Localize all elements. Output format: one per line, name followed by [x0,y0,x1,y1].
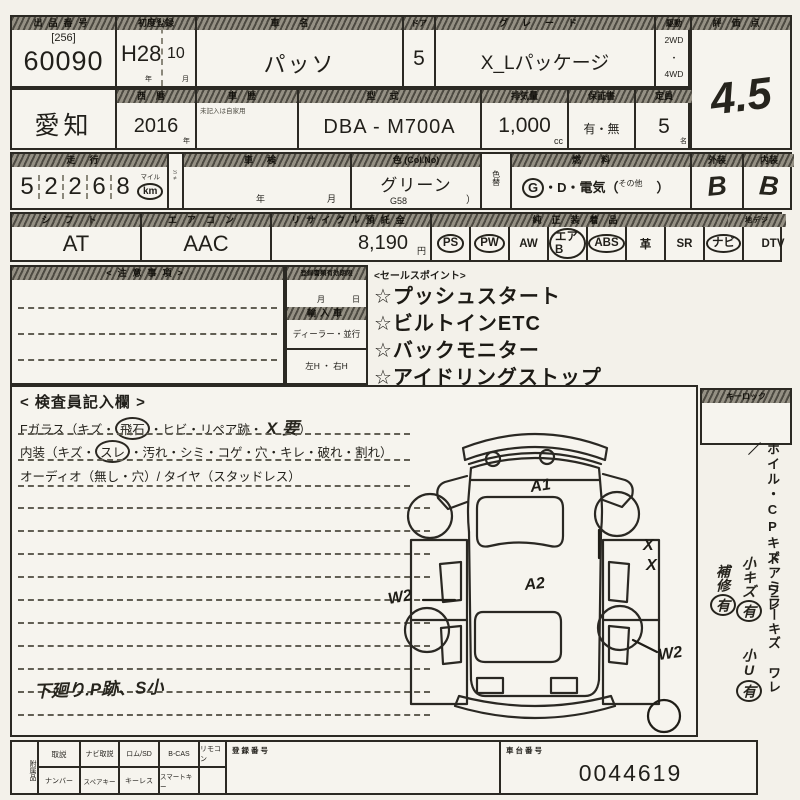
history-label: 車歴 [197,90,297,103]
first-reg-era: H28 [121,41,161,67]
accessories-row-top: 取説 ナビ取説 ロム/SD B-CAS リモコン [39,742,225,768]
shift-value: AT [12,231,140,257]
month-label: 月 [317,294,325,305]
hand-small-dent: 小U [741,648,757,678]
chassis-number-label: 車台番号 [506,745,544,756]
displacement-value: 1,000 [482,114,567,138]
grade-cell: グレード X_Lパッケージ [434,17,654,86]
year-unit: 年 [183,136,190,146]
side-note-handwritten: 小キズ有 小U有 補修有 [710,556,762,741]
region-value: 愛知 [12,106,115,142]
fuel-close-paren: ） [657,180,670,195]
shift-label: シフト [12,214,140,227]
rear-bumper [455,696,615,718]
capacity-cell: 定員 5 名 [634,90,692,148]
dashed-line [18,599,430,601]
acc-remote: リモコン [198,742,225,766]
rear-section [455,678,615,718]
hand-small-scratch: 小キズ [741,556,757,598]
dashed-line [18,714,430,716]
score-label: 評価点 [692,17,790,30]
dashed-line [18,333,277,335]
equipment-airbag: エアB [547,227,586,260]
mark-door-x2: X [645,557,658,574]
circled-yes: 有 [736,680,762,702]
year-cell: 西暦 2016 年 [115,90,195,148]
mileage-digit: 8 [110,175,134,199]
fuel-label: 燃料 [512,154,690,167]
displacement-cell: 排気量 1,000 cc [480,90,567,148]
recycle-fee-value: 8,190 [358,232,408,255]
shift-cell: シフト AT [12,214,140,260]
mileage-digit: 6 [86,175,110,199]
displacement-label: 排気量 [482,90,567,103]
chassis-number-cell: 車台番号 0044619 [499,742,760,793]
acc-rom-sd: ロム/SD [118,742,158,766]
auction-bracket: [256] [12,32,115,44]
bottom-table: 附属品 取説 ナビ取説 ロム/SD B-CAS リモコン ナンバー スペアキー … [10,740,758,795]
history-note: 未記入は自家用 [200,105,246,115]
model-code-cell: 型式 DBA - M700A [297,90,480,148]
warranty-value: 有・無 [569,120,634,137]
fuel-cell: 燃料 G・D・電気（その他） [510,154,690,208]
acc-navi-manual: ナビ取説 [79,742,118,766]
mileage-digit: 2 [62,175,86,199]
aircon-label: エアコン [142,214,270,227]
sales-points: <セールスポイント> ☆プッシュスタート ☆ビルトインETC ☆バックモニター … [374,267,694,392]
acc-spare-key: スペアキー [79,768,118,793]
drive-2wd: 2WD [656,35,692,45]
grade-value: X_Lパッケージ [436,48,654,75]
region-cell: 愛知 [12,90,115,148]
equipment-abs: ABS [586,227,625,260]
auction-number-value: 60090 [12,46,115,77]
interior-label: 内装 [744,154,794,167]
mark-w2-left: W2 [387,587,414,608]
circled-stone-chip: 飛石 [115,417,150,440]
acc-bcas: B-CAS [158,742,198,766]
side-note-printed-2: ドアミラーキズ ワレ [764,552,783,712]
circled-yes: 有 [710,594,736,616]
model-code-value: DBA - M700A [299,116,480,139]
first-reg-month: 10 [167,45,185,63]
equipment-block: 純正装着品 地デジ PS PW AW エアB ABS 革 SR ナビ DTV [430,214,784,260]
mark-hood: A1 [528,476,552,496]
aircon-value: AAC [142,231,270,257]
import-label: 輸入車 [287,307,366,320]
notes-label: <注意事項> [12,267,283,280]
windshield [477,497,563,547]
sales-point: ☆プッシュスタート [374,284,694,311]
drive-4wd: 4WD [656,69,692,79]
sales-point: ☆バックモニター [374,338,694,365]
fuel-other-label: その他 [619,179,643,188]
drive-dot: ・ [656,52,692,64]
dashed-line [18,668,430,670]
door-cell: ドア 5 [402,17,434,86]
cabin-side-left [469,532,471,680]
exterior-label: 外装 [692,154,742,167]
registration-number-cell: 登録番号 [225,742,499,793]
interior-grade-cell: 内装 B [742,154,794,208]
condition-line-glass: Fガラス（キズ・飛石・ヒビ・リペア跡・ X 要） [20,414,311,440]
dtv-header: 地デジ [728,214,786,227]
mileage-flag: S≠ [172,170,178,182]
accessories-grid: 取説 ナビ取説 ロム/SD B-CAS リモコン ナンバー スペアキー キーレス… [37,742,225,793]
dashed-line [18,433,410,435]
aircon-cell: エアコン AAC [140,214,270,260]
dashed-line [18,507,430,509]
km-unit-circled: km [137,183,163,200]
car-name-label: 車名 [197,17,402,30]
color-change-label: 色替 [491,170,501,186]
mileage-flag-cell: S≠ [167,154,182,208]
year-label: 西暦 [117,90,195,103]
car-name-cell: 車名 パッソ [195,17,402,86]
divider [161,17,163,86]
yen-unit: 円 [417,244,426,257]
mileage-digit: 2 [38,175,62,199]
doc-expiry-cell: 月 日 [287,280,366,307]
dashed-line [18,645,430,647]
year-value: 2016 [117,115,195,138]
dashed-line [18,622,430,624]
auction-number-cell: 出品番号 [256] 60090 [12,17,115,86]
doc-expiry-label: 登録書類有効期限 [287,267,366,280]
history-cell: 車歴 未記入は自家用 [195,90,297,148]
warranty-cell: 保証書 有・無 [567,90,634,148]
color-cell: 色 (Col.No) グリーン G58 ） [350,154,480,208]
inspector-handwritten-note: 下廻り.P跡、S小 [34,673,164,703]
acc-number-plate: ナンバー [39,768,79,793]
acc-keyless: キーレス [118,768,158,793]
row-2: 愛知 西暦 2016 年 車歴 未記入は自家用 型式 DBA - M700A 排… [10,88,690,150]
first-registration-cell: 初度登録 H28 10 年 月 [115,17,195,86]
hand-repair: 補修 [715,564,731,592]
exterior-grade-value: B [691,169,744,204]
sales-points-label: <セールスポイント> [374,267,694,282]
door-label: ドア [404,17,434,30]
sales-point: ☆ビルトインETC [374,311,694,338]
exterior-grade-cell: 外装 B [690,154,742,208]
auction-number-label: 出品番号 [12,17,115,30]
acc-empty [198,768,225,793]
chassis-number-value: 0044619 [501,760,760,787]
score-cell: 評価点 4.5 [690,15,792,150]
equipment-cells: PS PW AW エアB ABS 革 SR ナビ DTV [432,227,784,260]
dashed-line [18,530,430,532]
interior-grade-value: B [743,169,795,203]
dashed-line [18,307,277,309]
door-value: 5 [404,47,434,71]
diagram-annotations: A1 A2 X X W2 W2 [387,476,684,664]
day-label: 日 [352,294,360,305]
accessories-row-bottom: ナンバー スペアキー キーレス スマートキー [39,768,225,793]
color-label: 色 (Col.No) [352,154,480,167]
mileage-label: 走行 [12,154,167,167]
condition-line-audio-tire: オーディオ（無し・穴）/ タイヤ（スタッドレス） [20,466,301,485]
row-4: シフト AT エアコン AAC リサイクル預託金 8,190 円 純正装着品 地… [10,212,782,262]
acc-smart-key: スマートキー [158,768,198,793]
mileage-digit: 5 [16,175,38,199]
car-name-value: パッソ [197,47,402,79]
mileage-cell: 走行 5 2 2 6 8 マイル km [12,154,167,208]
fuel-gasoline-circled: G [522,178,544,198]
notes-box: <注意事項> [10,265,285,385]
fuel-options: ・D・電気（ [544,180,618,195]
equipment-label: 純正装着品 [432,214,728,227]
dashed-line [18,553,430,555]
first-registration-label: 初度登録 [117,17,195,30]
car-diagram: A1 A2 X X W2 W2 [385,412,705,742]
inspector-title: < 検査員記入欄 > [20,391,146,412]
mileage-unit-block: マイル km [137,174,163,200]
auction-sheet: 出品番号 [256] 60090 初度登録 H28 10 年 月 車名 パッソ … [0,0,800,800]
month-unit: 月 [182,74,189,84]
dashed-line [18,459,410,461]
recycle-fee-cell: リサイクル預託金 8,190 円 [270,214,430,260]
mark-w2-right: W2 [657,644,683,664]
acc-manual: 取説 [39,742,79,766]
circled-yes: 有 [736,600,762,622]
mark-roof: A2 [523,575,546,594]
equipment-dtv: DTV [742,227,800,260]
color-paren: ） [466,191,476,206]
drive-cell: 駆動 2WD ・ 4WD [654,17,692,86]
score-value: 4.5 [689,66,792,128]
handwritten-repair-needed: X 要 [266,419,299,438]
fuel-value: G・D・電気（その他） [522,177,670,198]
equipment-ps: PS [432,227,469,260]
row-1: 出品番号 [256] 60090 初度登録 H28 10 年 月 車名 パッソ … [10,15,690,88]
accessories-label: 附属品 [12,742,37,793]
dashed-line [18,485,410,487]
inspection-cell: 車検 年 月 [182,154,350,208]
equipment-leather: 革 [625,227,664,260]
washer-right [540,450,554,464]
capacity-unit: 名 [680,136,687,146]
year-unit: 年 [145,74,152,84]
drive-label: 駆動 [656,17,692,30]
documents-box: 登録書類有効期限 月 日 輸入車 ディーラー・並行 左H ・ 右H [285,265,368,385]
color-code: G58 [390,196,407,206]
equipment-pw: PW [469,227,508,260]
equipment-navi: ナビ [703,227,742,260]
mirror-right [603,474,633,507]
handle-options: 左H ・ 右H [287,348,366,381]
rear-window [475,612,561,662]
displacement-unit: cc [554,136,563,146]
mirror-left [437,476,467,509]
recycle-fee-label: リサイクル預託金 [272,214,430,227]
registration-number-label: 登録番号 [232,745,270,756]
grade-label: グレード [436,17,654,30]
inspection-label: 車検 [184,154,350,167]
capacity-label: 定員 [636,90,692,103]
inspection-year-unit: 年 [256,192,265,205]
mileage-digits: 5 2 2 6 8 マイル km [16,174,163,200]
equipment-sunroof: SR [664,227,703,260]
import-options: ディーラー・並行 [287,320,366,348]
model-code-label: 型式 [299,90,480,103]
handwritten-circle [648,700,680,732]
keylock-label: キーロック [702,390,790,403]
mark-door-x1: X [642,537,655,554]
warranty-label: 保証書 [569,90,634,103]
equipment-aw: AW [508,227,547,260]
dashed-line [18,359,277,361]
w2-right-pointer [633,640,657,652]
row-3: 走行 5 2 2 6 8 マイル km S≠ 車検 年 月 色 (Col.No)… [10,152,792,210]
dashed-line [18,576,430,578]
mile-unit-label: マイル [137,174,163,181]
color-change-cell: 色替 [480,154,510,208]
inspection-month-unit: 月 [327,192,336,205]
color-value: グリーン [352,171,480,196]
front-bumper [463,434,607,464]
keylock-box: キーロック [700,388,792,445]
